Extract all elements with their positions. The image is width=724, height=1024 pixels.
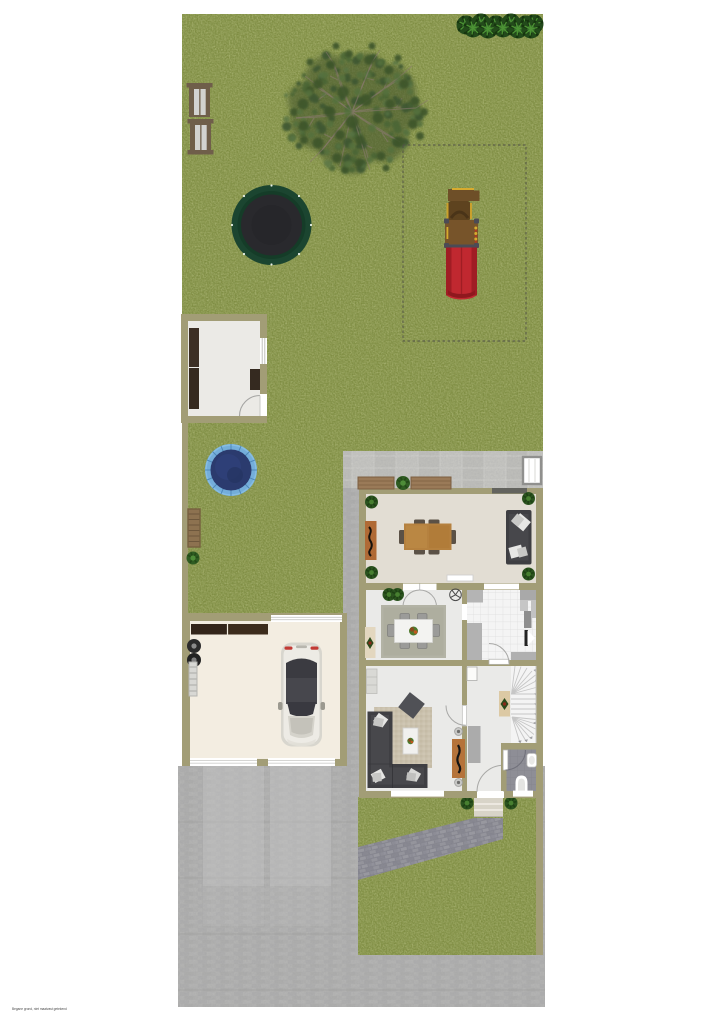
svg-text:Begane grond, niet maatvast ge: Begane grond, niet maatvast getekend <box>12 1007 67 1011</box>
